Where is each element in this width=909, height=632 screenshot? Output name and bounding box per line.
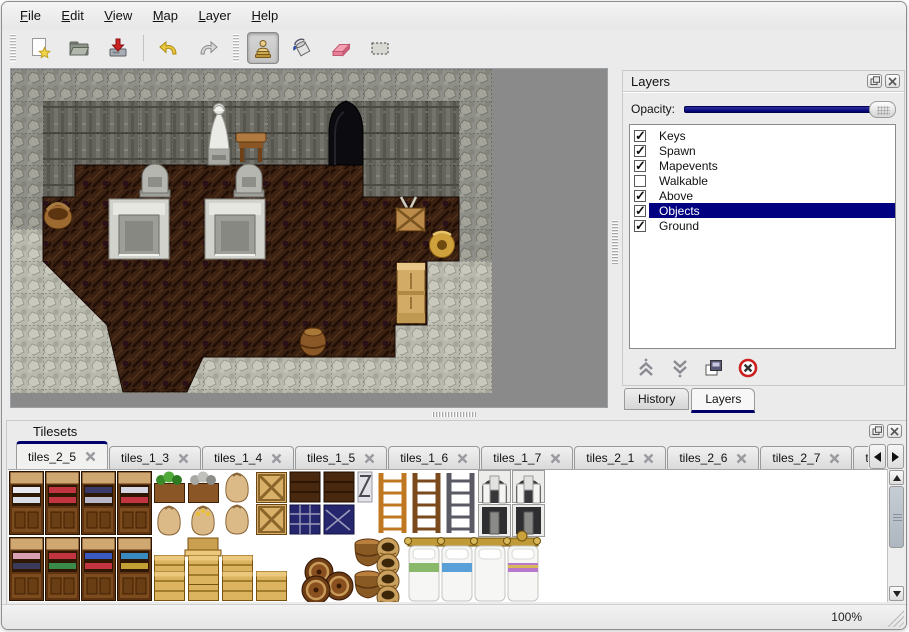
float-panel-button[interactable] [869, 424, 884, 438]
layers-panel: Layers Opacity: [622, 70, 905, 386]
arrow-left-icon [873, 452, 882, 462]
float-icon [872, 426, 882, 436]
tileset-art [8, 470, 568, 602]
layer-checkbox[interactable] [634, 190, 646, 202]
scrollbar-thumb[interactable] [889, 486, 904, 548]
app-window: File Edit View Map Layer Help [1, 1, 907, 630]
map-canvas[interactable] [10, 68, 608, 408]
opacity-slider[interactable] [684, 101, 896, 118]
arrow-up-icon [893, 475, 901, 481]
tileset-tab[interactable]: tiles_1_4 [202, 446, 294, 469]
tab-close-icon[interactable] [457, 453, 468, 464]
tileset-canvas[interactable] [8, 469, 888, 602]
tab-close-icon[interactable] [736, 453, 747, 464]
tileset-tab[interactable]: tiles_2_6 [667, 446, 759, 469]
tab-close-icon[interactable] [643, 453, 654, 464]
layer-label: Ground [659, 219, 699, 233]
tileset-tab[interactable]: tiles_1_3 [109, 446, 201, 469]
layers-panel-title: Layers [631, 74, 670, 89]
scroll-down-button[interactable] [889, 586, 904, 601]
tab-close-icon[interactable] [829, 453, 840, 464]
status-bar: 100% [2, 604, 906, 629]
layer-label: Mapevents [659, 159, 718, 173]
open-folder-icon [67, 36, 91, 60]
new-file-icon [28, 36, 52, 60]
tilesets-panel-title: Tilesets [33, 424, 77, 439]
open-button[interactable] [63, 32, 95, 64]
opacity-label: Opacity: [631, 102, 675, 116]
move-layer-up-button[interactable] [635, 357, 657, 379]
close-icon [890, 427, 899, 436]
select-tool-button[interactable] [364, 32, 396, 64]
layer-checkbox[interactable] [634, 220, 646, 232]
arrow-right-icon [891, 452, 900, 462]
layer-label: Walkable [659, 174, 708, 188]
redo-icon [196, 36, 220, 60]
move-layer-down-button[interactable] [669, 357, 691, 379]
tab-close-icon[interactable] [364, 453, 375, 464]
select-tool-icon [368, 36, 392, 60]
tab-history[interactable]: History [624, 388, 689, 410]
toolbar-separator [143, 35, 144, 61]
tileset-tab[interactable]: tiles_1_6 [388, 446, 480, 469]
layer-checkbox[interactable] [634, 145, 646, 157]
float-panel-button[interactable] [867, 74, 882, 88]
duplicate-layer-button[interactable] [703, 357, 725, 379]
menu-help[interactable]: Help [243, 7, 286, 24]
menu-bar: File Edit View Map Layer Help [2, 2, 906, 29]
tileset-tab[interactable]: tiles_1_7 [481, 446, 573, 469]
tab-scroll-left-button[interactable] [869, 444, 886, 469]
float-icon [870, 76, 880, 86]
eraser-tool-button[interactable] [325, 32, 357, 64]
arrow-down-icon [893, 591, 901, 597]
layer-row[interactable]: Keys [630, 128, 895, 143]
layer-row[interactable]: Ground [630, 218, 895, 233]
tab-close-icon[interactable] [85, 451, 96, 462]
save-button[interactable] [102, 32, 134, 64]
scroll-up-button[interactable] [889, 470, 904, 485]
fill-tool-icon [290, 36, 314, 60]
new-file-button[interactable] [24, 32, 56, 64]
layer-label: Objects [659, 204, 700, 218]
toolbar-grip[interactable] [233, 34, 239, 62]
zoom-level: 100% [831, 610, 862, 624]
layer-row[interactable]: Mapevents [630, 158, 895, 173]
close-panel-button[interactable] [885, 74, 900, 88]
layer-row[interactable]: Spawn [630, 143, 895, 158]
tileset-tab[interactable]: tiles_2_5 [16, 441, 108, 469]
tileset-tab[interactable]: tiles_ [853, 446, 868, 469]
toolbar-grip[interactable] [10, 34, 16, 62]
tab-layers[interactable]: Layers [691, 388, 755, 413]
menu-edit[interactable]: Edit [53, 7, 91, 24]
tab-close-icon[interactable] [271, 453, 282, 464]
tileset-tab[interactable]: tiles_2_1 [574, 446, 666, 469]
layer-checkbox[interactable] [634, 130, 646, 142]
map-art [11, 69, 492, 393]
layer-checkbox[interactable] [634, 175, 646, 187]
tileset-scrollbar[interactable] [887, 469, 905, 602]
toolbar [2, 29, 906, 67]
fill-tool-button[interactable] [286, 32, 318, 64]
menu-file[interactable]: File [12, 7, 49, 24]
vertical-splitter[interactable] [609, 68, 621, 408]
tileset-tab[interactable]: tiles_2_7 [760, 446, 852, 469]
undo-button[interactable] [153, 32, 185, 64]
undo-icon [157, 36, 181, 60]
tab-scroll-right-button[interactable] [887, 444, 904, 469]
tab-close-icon[interactable] [550, 453, 561, 464]
menu-layer[interactable]: Layer [190, 7, 239, 24]
layer-label: Keys [659, 129, 686, 143]
menu-map[interactable]: Map [145, 7, 186, 24]
close-icon [888, 77, 897, 86]
layer-row[interactable]: Above [630, 188, 895, 203]
layer-label: Above [659, 189, 693, 203]
layer-list: Keys Spawn Mapevents Walkable Above Obje… [629, 124, 896, 349]
horizontal-splitter[interactable] [10, 409, 907, 419]
opacity-slider-handle[interactable] [869, 101, 896, 118]
close-panel-button[interactable] [887, 424, 902, 438]
delete-layer-button[interactable] [737, 357, 759, 379]
layer-row[interactable]: Objects [630, 203, 895, 218]
redo-button[interactable] [192, 32, 224, 64]
layer-checkbox[interactable] [634, 160, 646, 172]
save-icon [106, 36, 130, 60]
layer-row[interactable]: Walkable [630, 173, 895, 188]
tilesets-panel: Tilesets tiles_2_5 [6, 420, 907, 609]
resize-grip[interactable] [885, 608, 904, 627]
tileset-tab[interactable]: tiles_1_5 [295, 446, 387, 469]
stamp-tool-icon [251, 36, 275, 60]
tab-close-icon[interactable] [178, 453, 189, 464]
eraser-tool-icon [329, 36, 353, 60]
menu-view[interactable]: View [96, 7, 140, 24]
layer-checkbox[interactable] [634, 205, 646, 217]
opacity-slider-groove [684, 106, 894, 113]
stamp-tool-button[interactable] [247, 32, 279, 64]
layer-label: Spawn [659, 144, 696, 158]
